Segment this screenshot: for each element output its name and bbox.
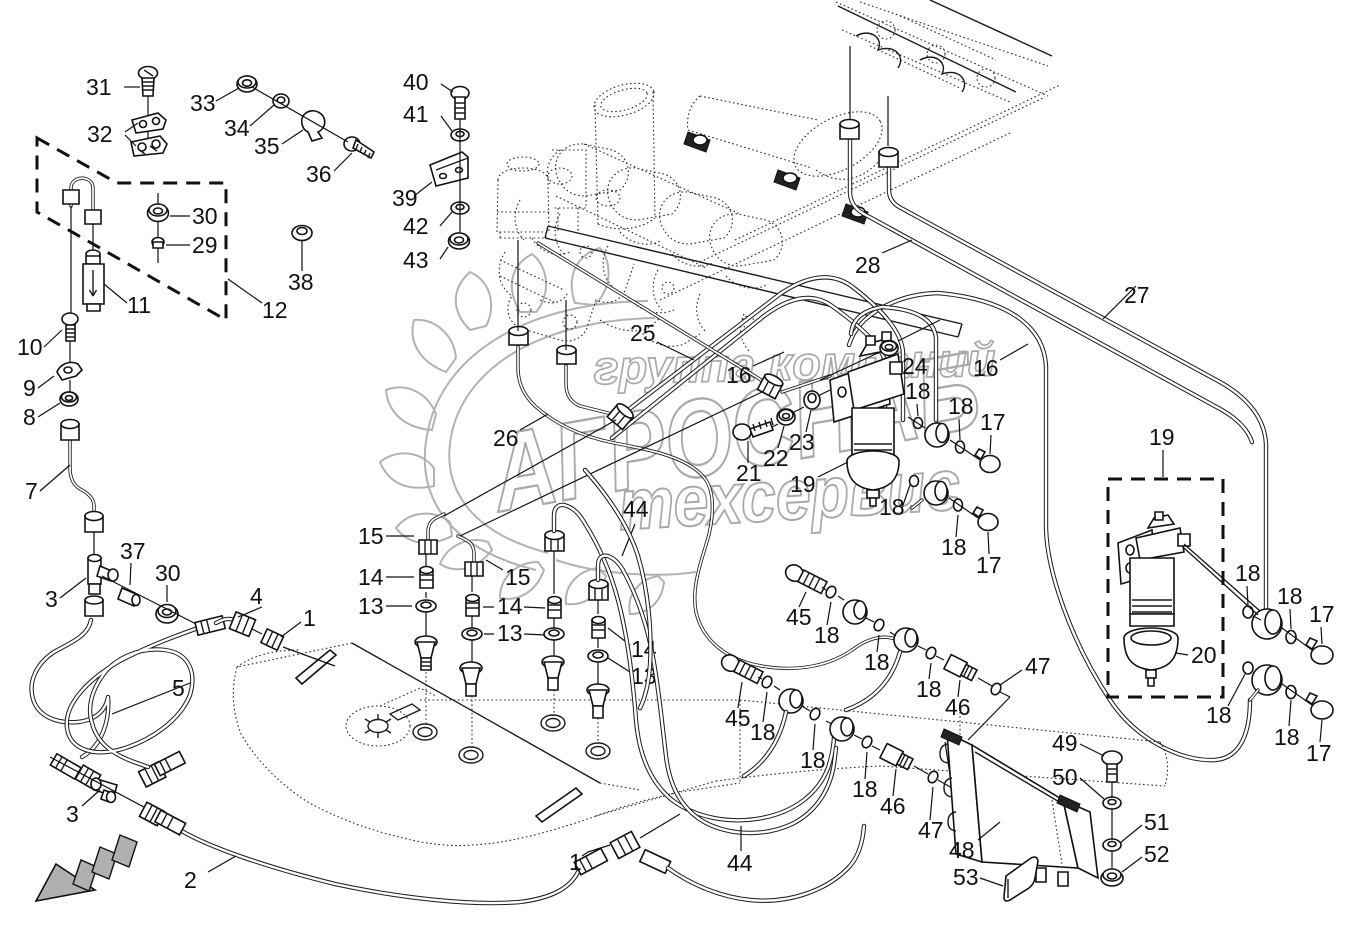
svg-text:30: 30 [192,203,218,229]
svg-text:48: 48 [949,837,975,863]
svg-text:18: 18 [948,393,974,419]
svg-text:16: 16 [973,355,999,381]
svg-text:26: 26 [493,425,519,451]
svg-text:3: 3 [66,801,79,827]
svg-text:28: 28 [855,252,881,278]
svg-text:15: 15 [505,564,531,590]
svg-text:35: 35 [254,133,280,159]
svg-text:20: 20 [1191,642,1217,668]
svg-text:25: 25 [630,320,656,346]
svg-text:1: 1 [569,849,582,875]
svg-text:31: 31 [86,74,112,100]
svg-text:13: 13 [497,620,523,646]
svg-text:18: 18 [916,676,942,702]
svg-text:18: 18 [1277,583,1303,609]
svg-text:18: 18 [852,776,878,802]
svg-text:33: 33 [190,90,216,116]
svg-text:15: 15 [358,523,384,549]
svg-text:19: 19 [1149,424,1175,450]
svg-text:47: 47 [1025,653,1051,679]
svg-text:7: 7 [25,478,38,504]
svg-text:37: 37 [120,538,146,564]
svg-text:18: 18 [1235,560,1261,586]
svg-text:50: 50 [1052,764,1078,790]
svg-text:22: 22 [763,445,789,471]
svg-text:3: 3 [45,586,58,612]
svg-text:44: 44 [623,496,649,522]
svg-text:13: 13 [358,593,384,619]
svg-text:36: 36 [306,161,332,187]
svg-text:46: 46 [880,793,906,819]
svg-text:14: 14 [497,593,523,619]
svg-text:18: 18 [1206,702,1232,728]
svg-text:51: 51 [1144,809,1170,835]
svg-text:49: 49 [1052,730,1078,756]
svg-text:47: 47 [918,817,944,843]
svg-text:45: 45 [786,604,812,630]
svg-text:18: 18 [941,534,967,560]
svg-text:18: 18 [879,494,905,520]
svg-text:40: 40 [403,69,429,95]
svg-text:43: 43 [403,247,429,273]
svg-text:17: 17 [980,409,1006,435]
svg-text:30: 30 [155,560,181,586]
svg-text:38: 38 [288,269,314,295]
svg-text:23: 23 [789,429,815,455]
svg-text:44: 44 [727,850,753,876]
svg-text:17: 17 [976,552,1002,578]
svg-text:24: 24 [902,353,928,379]
svg-text:10: 10 [17,334,43,360]
svg-text:18: 18 [750,719,776,745]
svg-text:29: 29 [192,232,218,258]
svg-text:39: 39 [392,185,418,211]
svg-text:18: 18 [1274,724,1300,750]
svg-text:17: 17 [1306,740,1332,766]
svg-text:18: 18 [905,378,931,404]
svg-text:19: 19 [790,471,816,497]
svg-text:52: 52 [1144,841,1170,867]
svg-text:4: 4 [250,583,263,609]
svg-text:45: 45 [725,705,751,731]
svg-text:1: 1 [303,605,316,631]
svg-text:32: 32 [87,121,113,147]
svg-text:18: 18 [814,622,840,648]
svg-text:18: 18 [864,649,890,675]
svg-text:2: 2 [184,867,197,893]
svg-text:34: 34 [224,115,250,141]
svg-text:9: 9 [23,375,36,401]
svg-text:11: 11 [127,292,151,318]
svg-text:18: 18 [800,747,826,773]
svg-text:14: 14 [358,564,384,590]
svg-text:53: 53 [953,864,979,890]
svg-text:16: 16 [726,362,752,388]
svg-text:21: 21 [736,460,762,486]
svg-text:8: 8 [23,404,36,430]
svg-text:41: 41 [403,101,429,127]
svg-text:46: 46 [945,694,971,720]
svg-text:17: 17 [1309,601,1335,627]
svg-text:42: 42 [403,213,429,239]
svg-text:12: 12 [262,297,288,323]
